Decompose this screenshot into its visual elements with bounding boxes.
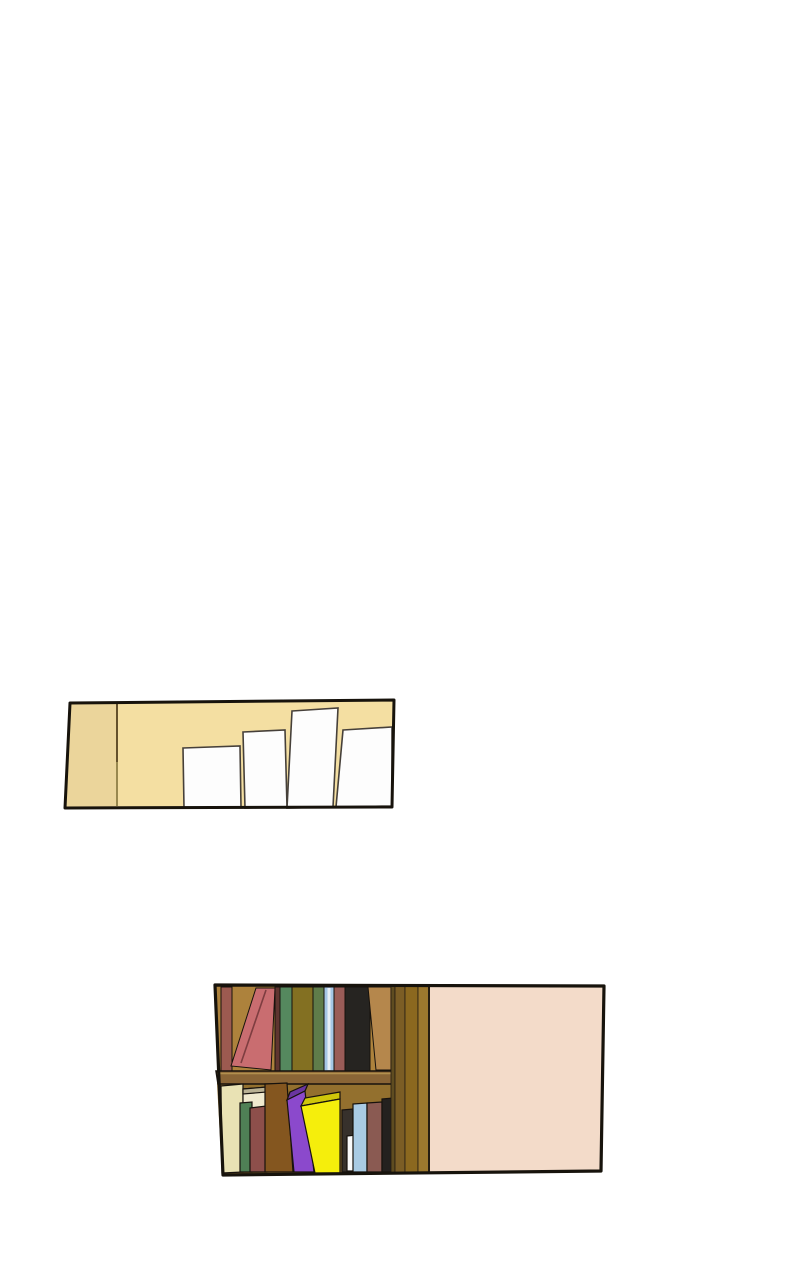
black-book-top-shelf: [345, 987, 370, 1071]
panel-bookshelf: [215, 985, 604, 1175]
comic-art: [0, 0, 800, 1280]
shelf-side-planks: [391, 986, 429, 1173]
rosewood-book: [367, 1102, 382, 1172]
panel1-side-wall: [65, 703, 117, 808]
shelf-plank-1: [391, 986, 395, 1173]
blank-canvas-2: [243, 730, 287, 808]
blank-canvas-4: [336, 727, 392, 807]
shelf-plank-4: [418, 986, 429, 1172]
maroon-book-top-shelf: [334, 987, 345, 1071]
shelf-plank-2: [395, 986, 405, 1173]
maroon-book-bottom-shelf: [250, 1106, 266, 1172]
dusty-maroon-book: [221, 987, 232, 1071]
green-book-top-shelf: [280, 987, 292, 1071]
blank-canvas-3: [287, 708, 338, 808]
shelf-plank-3: [405, 986, 418, 1172]
blank-canvas-1: [183, 746, 241, 808]
light-blue-book-bottom-shelf: [353, 1103, 367, 1172]
light-blue-book-stripe: [328, 988, 331, 1070]
panel-canvases-against-wall: [65, 700, 394, 808]
olive-green-book: [313, 987, 324, 1071]
comic-page: [0, 0, 800, 1280]
mustard-book: [292, 987, 313, 1071]
dark-maroon-book: [275, 987, 280, 1071]
